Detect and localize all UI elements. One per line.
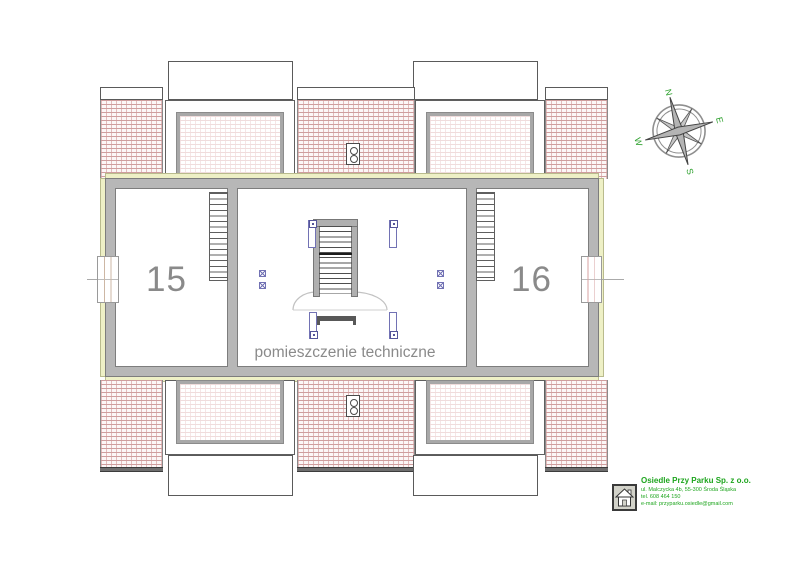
outlet-icon-left-upper	[259, 270, 266, 277]
eave-bar-bottom-center	[297, 467, 415, 472]
outlet-icon-left-lower	[259, 282, 266, 289]
skylight-box-bottom-right	[413, 455, 538, 496]
window-left	[97, 256, 119, 303]
window-left-centerline	[87, 279, 97, 280]
company-name: Osiedle Przy Parku Sp. z o.o.	[641, 476, 751, 485]
duct-icon-bottom-right	[389, 312, 397, 339]
duct-icon-top-left	[308, 220, 316, 248]
dormer-top-right-room	[427, 113, 533, 179]
roof-ridge-cap-top-center	[297, 87, 415, 100]
dormer-top-left-room	[177, 113, 283, 179]
skylight-box-top-right	[413, 61, 538, 100]
outlet-icon-right-upper	[437, 270, 444, 277]
technical-room-label: pomieszczenie techniczne	[245, 344, 445, 362]
company-email: e-mail: przyparku.osiedle@gmail.com	[641, 501, 733, 507]
duct-icon-bottom-left	[309, 312, 317, 339]
central-staircase	[314, 220, 357, 296]
unit-16-stairs	[476, 192, 495, 281]
compass-rose-icon: N E S W	[633, 85, 725, 177]
eave-bar-bottom-right	[545, 467, 608, 472]
roof-vent-bottom-icon	[346, 395, 360, 417]
skylight-box-bottom-left	[168, 455, 293, 496]
outlet-icon-right-lower	[437, 282, 444, 289]
floor-plan: 15 16 pomieszczenie techniczne	[0, 0, 799, 565]
roof-hatch-top-left	[100, 100, 163, 179]
unit-16-label: 16	[511, 262, 551, 297]
dormer-bottom-left-room	[177, 381, 283, 443]
unit-15-stairs	[209, 192, 228, 281]
duct-icon-top-right	[389, 220, 397, 248]
roof-hatch-bottom-right	[545, 380, 608, 467]
roof-hatch-top-right	[545, 100, 608, 179]
compass-label-south: S	[684, 167, 695, 175]
unit-15-label: 15	[146, 262, 186, 297]
roof-vent-top-icon	[346, 143, 360, 165]
eave-bar-bottom-left	[100, 467, 163, 472]
handrail-bar	[317, 316, 356, 321]
window-right-centerline	[602, 279, 624, 280]
company-address: ul. Malczycka 4b, 55-300 Środa Śląska	[641, 487, 736, 493]
roof-ridge-cap-top-right	[545, 87, 608, 100]
party-wall-right	[467, 188, 476, 367]
roof-hatch-bottom-left	[100, 380, 163, 467]
roof-hatch-top-center	[297, 100, 415, 179]
skylight-box-top-left	[168, 61, 293, 100]
house-icon	[612, 484, 637, 511]
roof-hatch-bottom-center	[297, 380, 415, 467]
roof-ridge-cap-top-left	[100, 87, 163, 100]
compass-label-north: N	[663, 88, 674, 97]
compass-label-west: W	[633, 136, 644, 147]
dormer-bottom-right-room	[427, 381, 533, 443]
company-phone: tel. 608 464 150	[641, 494, 680, 500]
party-wall-left	[228, 188, 237, 367]
compass-label-east: E	[714, 116, 725, 124]
window-right	[581, 256, 602, 303]
